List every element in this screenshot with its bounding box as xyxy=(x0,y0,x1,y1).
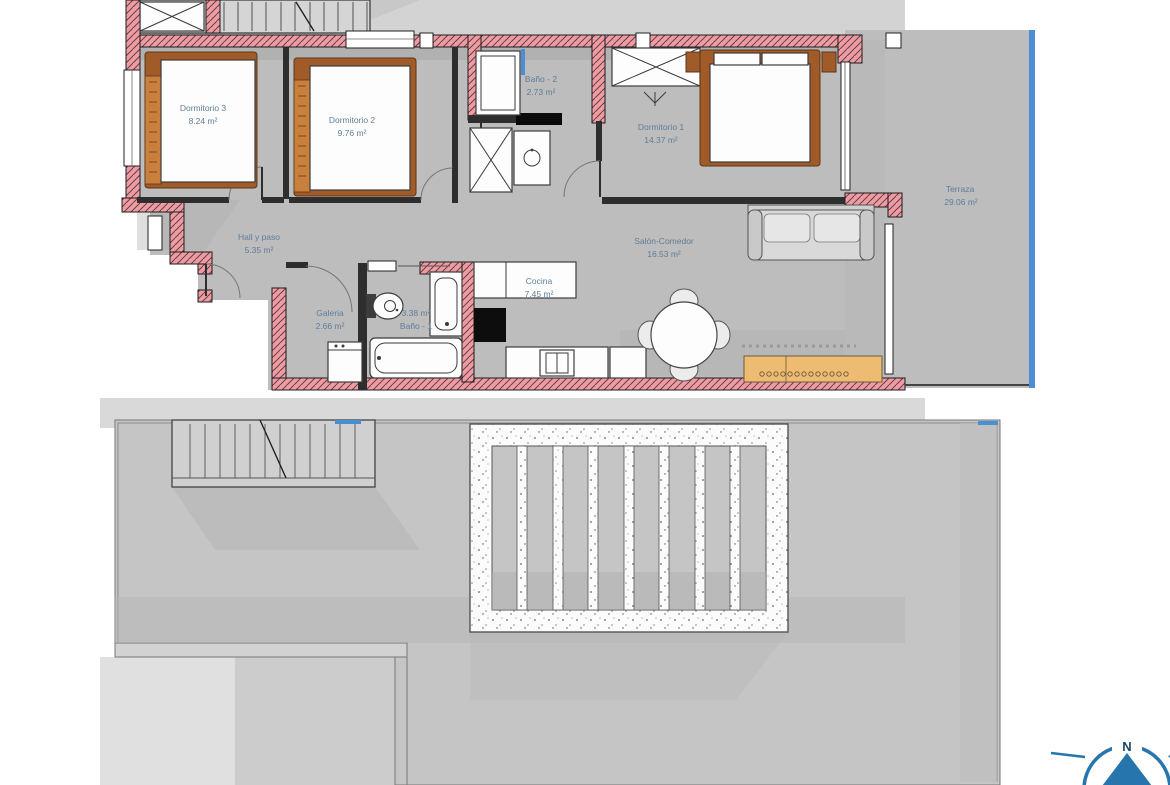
room-label-dormitorio-1-area: 14.37 m² xyxy=(644,135,678,145)
floor-plan-drawing: Dormitorio 3 8.24 m² Dormitorio 2 9.76 m… xyxy=(0,0,1170,785)
room-label-dormitorio-3-name: Dormitorio 3 xyxy=(180,103,227,113)
room-label-salon-name: Salón-Comedor xyxy=(634,236,694,246)
upper-floor-plan: Dormitorio 3 8.24 m² Dormitorio 2 9.76 m… xyxy=(122,0,1035,390)
sliding-door-icon xyxy=(885,224,893,374)
room-label-salon-area: 16.53 m² xyxy=(647,249,681,259)
parapet-wall xyxy=(115,643,407,657)
pillar-icon xyxy=(886,33,901,48)
room-label-hall-name: Hall y paso xyxy=(238,232,280,242)
room-label-galeria-area: 2.66 m² xyxy=(316,321,345,331)
room-label-dormitorio-1-name: Dormitorio 1 xyxy=(638,122,685,132)
roof-wall-shade xyxy=(960,423,997,782)
room-label-galeria-name: Galeria xyxy=(316,308,344,318)
railing-mark xyxy=(335,420,361,424)
north-arrow-icon xyxy=(1099,753,1155,785)
room-label-bano-2-name: Baño - 2 xyxy=(525,74,557,84)
railing-mark xyxy=(978,421,998,425)
room-label-cocina-area: 7.45 m² xyxy=(525,289,554,299)
roof-highlight xyxy=(330,0,905,36)
stove-icon xyxy=(474,308,506,342)
pergola-shadow xyxy=(470,632,788,700)
room-label-terraza-name: Terraza xyxy=(946,184,975,194)
washing-machine-icon xyxy=(328,342,362,382)
pocket-door-icon xyxy=(368,261,396,271)
toilet-icon xyxy=(366,293,403,319)
floor-plan-canvas: Dormitorio 3 8.24 m² Dormitorio 2 9.76 m… xyxy=(0,0,1170,785)
room-label-dormitorio-2-name: Dormitorio 2 xyxy=(329,115,376,125)
washbasin-icon xyxy=(514,131,550,185)
room-label-bano-2-area: 2.73 m² xyxy=(527,87,556,97)
room-label-dormitorio-3-area: 8.24 m² xyxy=(189,116,218,126)
parapet-wall xyxy=(395,657,407,785)
sliding-door-icon xyxy=(841,62,850,190)
pergola xyxy=(470,424,788,632)
window-icon xyxy=(148,216,162,250)
pillar-icon xyxy=(420,33,433,48)
staircase-upper xyxy=(137,0,370,33)
room-label-bano-1-name: Baño - 1 xyxy=(400,321,432,331)
room-label-hall-area: 5.35 m² xyxy=(245,245,274,255)
room-label-dormitorio-2-area: 9.76 m² xyxy=(338,128,367,138)
roof-cutout xyxy=(100,657,235,785)
room-label-bano-1-area: 3.38 m² xyxy=(402,308,431,318)
shower-icon xyxy=(476,49,525,115)
terrace-railing xyxy=(1029,30,1035,388)
bed-icon xyxy=(294,58,416,196)
north-compass: N xyxy=(1051,736,1170,785)
room-label-terraza-area: 29.06 m² xyxy=(944,197,978,207)
room-label-cocina-name: Cocina xyxy=(526,276,553,286)
lower-floor-plan xyxy=(100,398,1000,785)
north-label: N xyxy=(1122,739,1131,754)
roof-recess xyxy=(235,657,395,785)
pillar-icon xyxy=(636,33,650,49)
double-bed-icon xyxy=(686,50,836,166)
window-icon xyxy=(346,31,414,48)
staircase-lower xyxy=(172,420,375,487)
sink-counter-icon xyxy=(430,272,462,336)
bathtub-icon xyxy=(370,338,462,378)
sofa-icon xyxy=(748,205,874,260)
